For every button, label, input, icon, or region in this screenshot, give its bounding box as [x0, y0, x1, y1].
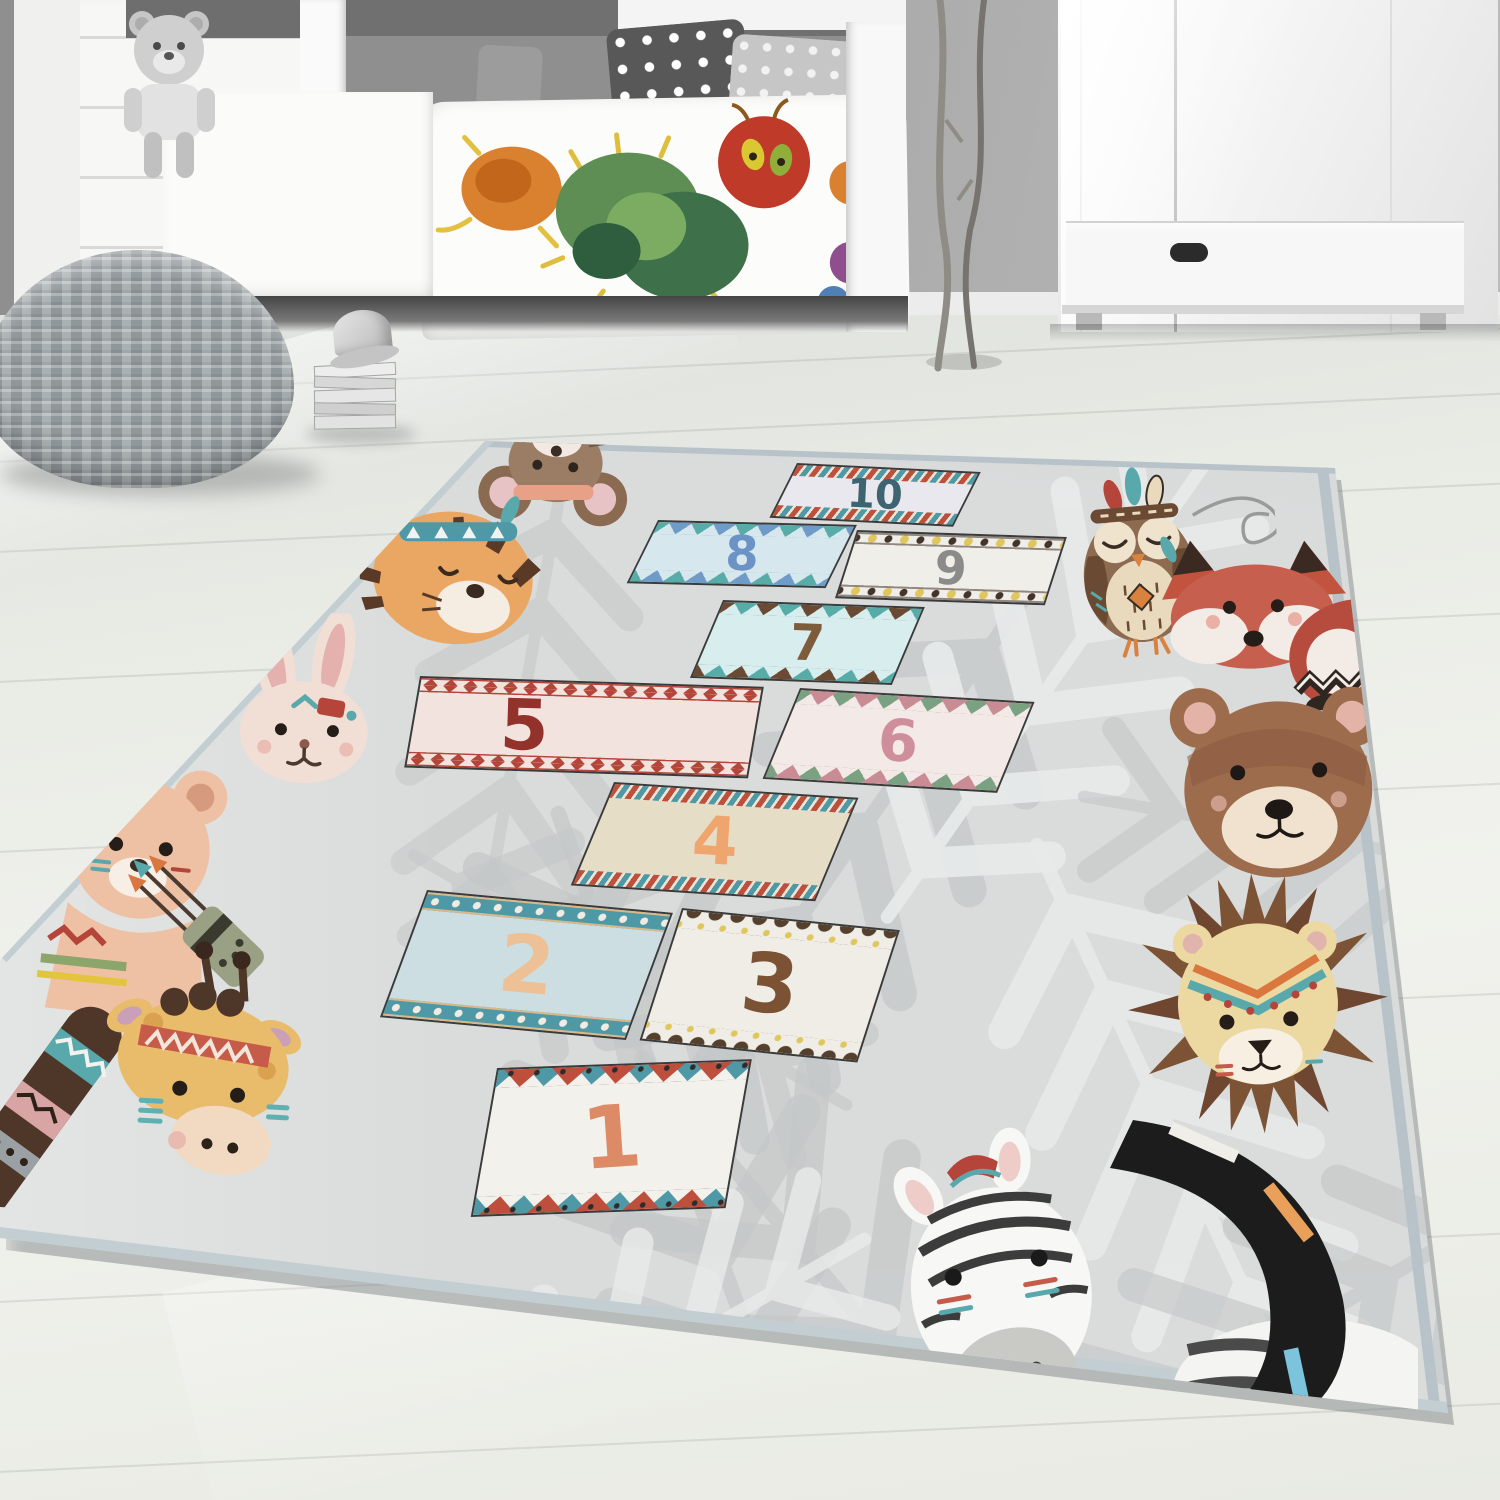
drawer-handle	[1170, 243, 1208, 262]
hopscotch-square-1: 1	[471, 1059, 752, 1217]
decorative-branches	[912, 0, 1022, 375]
hopscotch-square-9: 9	[835, 530, 1067, 605]
bed-footboard	[846, 22, 906, 332]
baseball-cap	[325, 307, 401, 376]
square-number: 9	[934, 544, 968, 591]
hopscotch-square-3: 3	[639, 908, 899, 1063]
bedroom-scene: 1 2 3 4 5 6 7	[0, 0, 1500, 1500]
hopscotch-square-4: 4	[571, 782, 859, 901]
wardrobe-shadow	[1050, 324, 1500, 342]
square-number: 3	[737, 942, 802, 1029]
hopscotch-square-7: 7	[690, 600, 925, 685]
square-border-bottom	[630, 569, 831, 586]
wardrobe	[1058, 0, 1498, 332]
teddy-bear-toy	[112, 0, 227, 181]
square-number: 4	[690, 807, 740, 876]
square-number: 1	[578, 1093, 644, 1183]
square-number: 5	[499, 690, 550, 761]
square-number: 2	[495, 923, 558, 1008]
square-number: 7	[789, 617, 826, 668]
wardrobe-drawer	[1066, 221, 1464, 307]
hopscotch-square-8: 8	[627, 520, 857, 588]
hopscotch-square-2: 2	[380, 890, 673, 1040]
rug-animal-giraffe	[0, 906, 348, 1225]
book-stack	[314, 364, 396, 436]
hopscotch-square-5: 5	[404, 676, 764, 778]
hopscotch-square-6: 6	[763, 688, 1035, 793]
square-number: 6	[877, 710, 921, 770]
hopscotch-square-10: 10	[769, 463, 980, 527]
